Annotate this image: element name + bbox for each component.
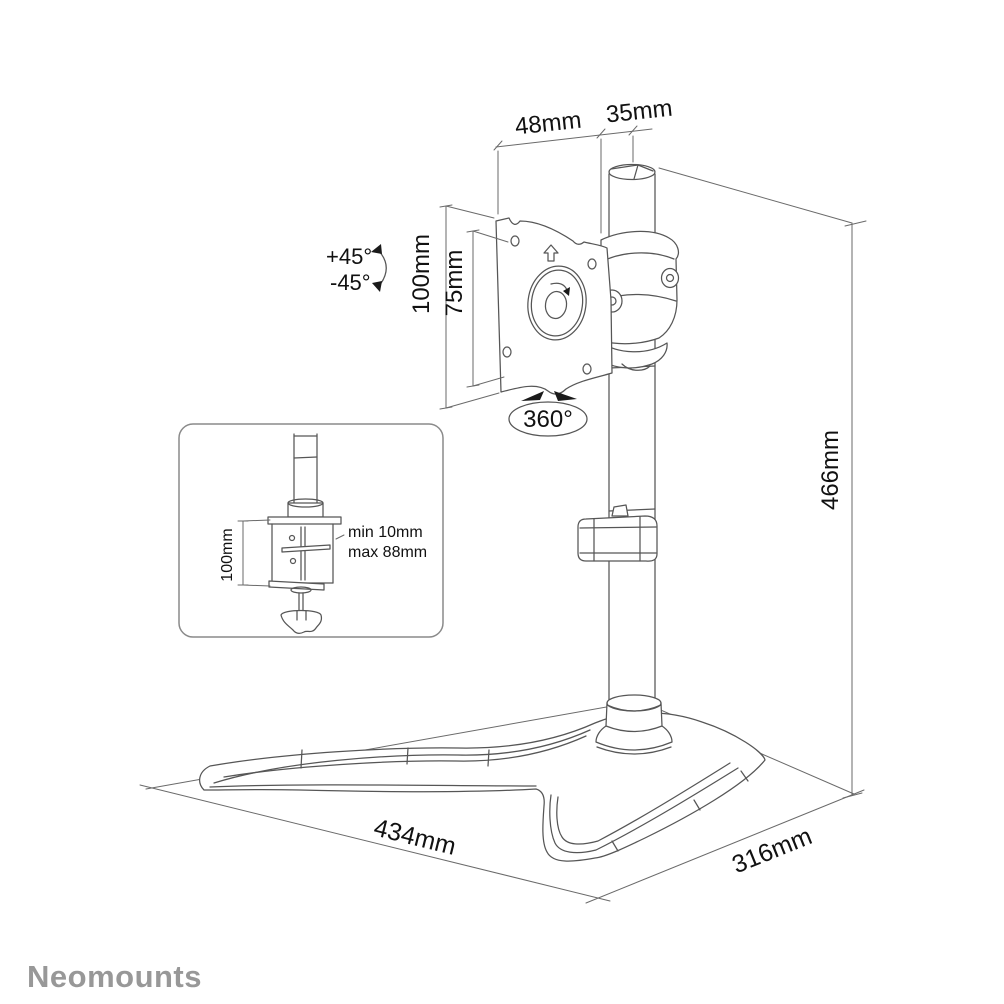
product-dimension-diagram: +45° -45° 360° 48mm 35mm bbox=[0, 0, 1004, 1004]
clamp-screw-right bbox=[662, 269, 679, 288]
inset-clamp-detail: 100mm min 10mm max 88mm bbox=[179, 424, 443, 637]
base-collar bbox=[596, 695, 672, 754]
vesa-inner-label: 75mm bbox=[441, 250, 468, 317]
tilt-up-label: +45° bbox=[326, 244, 372, 269]
base-depth-label: 316mm bbox=[728, 822, 816, 879]
base-width-label: 434mm bbox=[371, 814, 459, 861]
brand-logo: Neomounts bbox=[27, 959, 202, 994]
base bbox=[200, 713, 765, 861]
tilt-arrow-icon bbox=[371, 244, 386, 292]
tilt-annotation: +45° -45° bbox=[326, 244, 386, 295]
line-drawing-canvas: +45° -45° 360° 48mm 35mm bbox=[0, 0, 1004, 1004]
top-width-pole-label: 35mm bbox=[605, 95, 674, 129]
rotation-label: 360° bbox=[523, 406, 573, 433]
dimension-vesa: 100mm 75mm bbox=[408, 205, 508, 409]
rotation-annotation: 360° bbox=[509, 391, 587, 436]
tilt-down-label: -45° bbox=[330, 270, 371, 295]
inset-clamp-range: min 10mm max 88mm bbox=[336, 524, 427, 561]
top-width-outer-label: 48mm bbox=[514, 107, 583, 141]
vesa-plate bbox=[496, 218, 612, 394]
inset-clamp-max-label: max 88mm bbox=[348, 544, 427, 561]
inset-clamp-min-label: min 10mm bbox=[348, 524, 423, 541]
rotation-arrowhead-left bbox=[521, 391, 544, 401]
vesa-outer-label: 100mm bbox=[408, 234, 435, 314]
dimension-base-width bbox=[140, 785, 610, 901]
height-label: 466mm bbox=[817, 430, 844, 510]
inset-clamp-height-label: 100mm bbox=[219, 528, 236, 581]
rotation-arrowhead-right bbox=[554, 391, 577, 401]
inset-dimension-clamp-height: 100mm bbox=[219, 520, 270, 586]
inset-clamp-drawing bbox=[268, 434, 341, 633]
